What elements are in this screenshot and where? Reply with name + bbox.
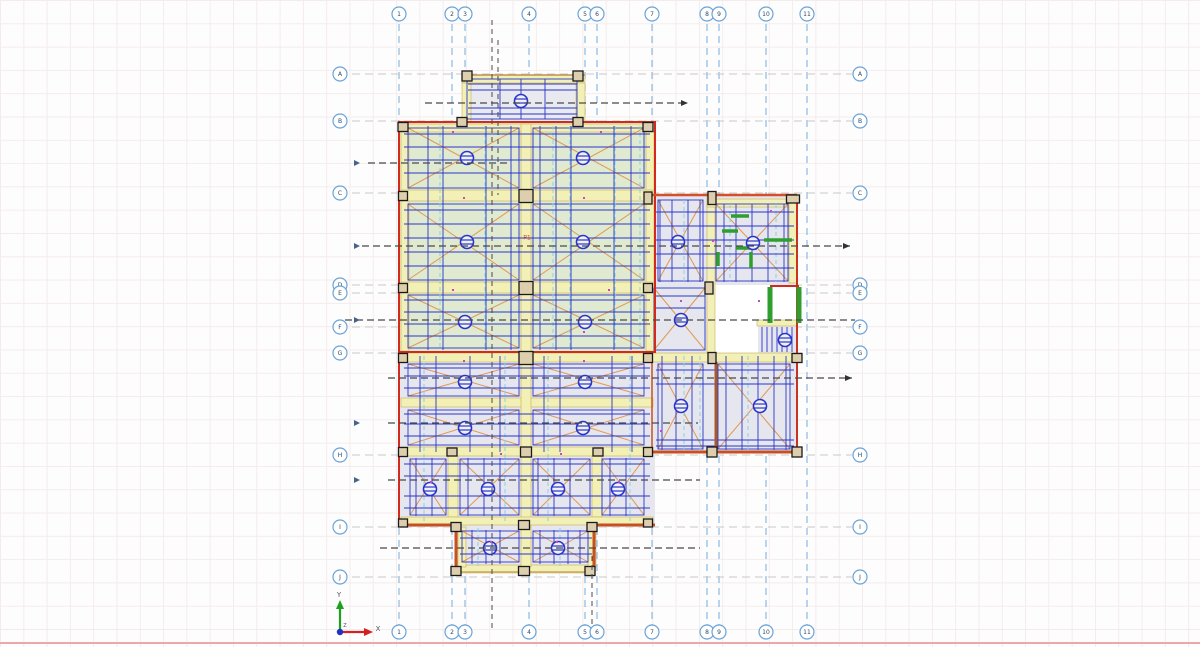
grid-bubble-label-left-F: F bbox=[338, 324, 342, 331]
grid-bubble-label-left-C: C bbox=[338, 190, 342, 197]
section-arrow bbox=[681, 100, 688, 106]
grid-bubble-label-top-7: 7 bbox=[650, 11, 654, 18]
node-speck bbox=[680, 300, 682, 302]
grid-bubble-label-top-11: 11 bbox=[803, 11, 811, 18]
ucs-y-label: Y bbox=[336, 591, 342, 599]
grid-bubble-label-left-H: H bbox=[338, 452, 343, 459]
section-flag bbox=[354, 420, 360, 426]
column[interactable] bbox=[462, 71, 472, 81]
column[interactable] bbox=[643, 123, 653, 132]
slab-marker[interactable] bbox=[754, 400, 767, 413]
grid-bubble-label-top-9: 9 bbox=[717, 11, 721, 18]
column[interactable] bbox=[644, 448, 653, 457]
node-speck bbox=[758, 300, 760, 302]
slab-marker[interactable] bbox=[779, 334, 792, 347]
grid-bubble-label-right-B: B bbox=[858, 118, 862, 125]
column[interactable] bbox=[447, 448, 457, 456]
grid-bubble-label-bottom-3: 3 bbox=[463, 629, 467, 636]
grid-bubble-label-top-3: 3 bbox=[463, 11, 467, 18]
grid-bubble-label-bottom-2: 2 bbox=[450, 629, 454, 636]
node-speck bbox=[463, 197, 465, 199]
node-speck bbox=[600, 131, 602, 133]
section-arrow bbox=[843, 243, 850, 249]
column[interactable] bbox=[399, 448, 408, 457]
node-speck bbox=[608, 289, 610, 291]
column[interactable] bbox=[587, 523, 597, 532]
slab-marker[interactable] bbox=[675, 400, 688, 413]
grid-bubble-label-right-I: I bbox=[859, 524, 861, 531]
grid-bubble-label-top-10: 10 bbox=[762, 11, 770, 18]
column[interactable] bbox=[644, 519, 653, 527]
column[interactable] bbox=[707, 447, 717, 457]
grid-bubble-label-top-8: 8 bbox=[705, 11, 709, 18]
node-speck bbox=[490, 541, 492, 543]
beam-strip[interactable] bbox=[521, 527, 531, 567]
grid-bubble-label-bottom-1: 1 bbox=[397, 629, 401, 636]
column[interactable] bbox=[399, 192, 408, 201]
grid-bubble-label-left-J: J bbox=[338, 574, 341, 581]
column[interactable] bbox=[398, 123, 408, 132]
column[interactable] bbox=[792, 354, 802, 363]
node-speck bbox=[618, 481, 620, 483]
node-speck bbox=[463, 360, 465, 362]
node-speck bbox=[556, 541, 558, 543]
column[interactable] bbox=[519, 282, 533, 295]
node-speck bbox=[430, 481, 432, 483]
grid-bubble-label-right-F: F bbox=[858, 324, 862, 331]
grid-bubble-label-right-J: J bbox=[858, 574, 861, 581]
slab-block-6[interactable] bbox=[652, 353, 797, 453]
slab-marker[interactable] bbox=[577, 152, 590, 165]
column[interactable] bbox=[451, 523, 461, 532]
column[interactable] bbox=[399, 284, 408, 293]
ucs-x-label: X bbox=[376, 625, 381, 633]
section-flag bbox=[354, 243, 360, 249]
section-arrow bbox=[845, 375, 852, 381]
grid-bubble-label-left-I: I bbox=[339, 524, 341, 531]
grid-bubble-label-bottom-8: 8 bbox=[705, 629, 709, 636]
node-speck bbox=[770, 210, 772, 212]
node-speck bbox=[583, 360, 585, 362]
beam-strip[interactable] bbox=[646, 132, 654, 351]
column[interactable] bbox=[585, 567, 595, 576]
slab-marker[interactable] bbox=[424, 483, 437, 496]
grid-bubble-label-bottom-4: 4 bbox=[527, 629, 531, 636]
column[interactable] bbox=[644, 354, 653, 363]
node-speck bbox=[583, 331, 585, 333]
section-flag bbox=[354, 477, 360, 483]
beam-strip[interactable] bbox=[789, 203, 797, 283]
section-flag bbox=[354, 317, 360, 323]
grid-bubble-label-top-4: 4 bbox=[527, 11, 531, 18]
grid-bubble-label-bottom-7: 7 bbox=[650, 629, 654, 636]
grid-bubble-label-bottom-9: 9 bbox=[717, 629, 721, 636]
grid-bubble-label-right-C: C bbox=[858, 190, 862, 197]
column[interactable] bbox=[519, 567, 530, 576]
grid-bubble-label-top-2: 2 bbox=[450, 11, 454, 18]
slab-label: P1 bbox=[523, 235, 531, 242]
beam-strip[interactable] bbox=[757, 320, 797, 326]
beam-strip[interactable] bbox=[521, 362, 531, 527]
grid-bubble-label-bottom-10: 10 bbox=[762, 629, 770, 636]
column[interactable] bbox=[399, 519, 408, 527]
column[interactable] bbox=[708, 192, 716, 205]
beam-strip[interactable] bbox=[399, 353, 797, 362]
column[interactable] bbox=[451, 567, 461, 576]
node-speck bbox=[500, 453, 502, 455]
grid-bubble-label-right-E: E bbox=[858, 290, 862, 297]
beam-strip[interactable] bbox=[707, 195, 715, 353]
column[interactable] bbox=[787, 195, 800, 203]
ucs-axis-icon bbox=[336, 600, 373, 636]
node-speck bbox=[452, 131, 454, 133]
column[interactable] bbox=[593, 448, 603, 456]
grid-bubble-label-left-E: E bbox=[338, 290, 342, 297]
slab-marker[interactable] bbox=[482, 483, 495, 496]
column[interactable] bbox=[457, 118, 467, 127]
column[interactable] bbox=[399, 354, 408, 363]
grid-bubble-label-top-6: 6 bbox=[595, 11, 599, 18]
section-flag bbox=[354, 160, 360, 166]
grid-bubble-label-left-G: G bbox=[338, 350, 343, 357]
column[interactable] bbox=[521, 447, 532, 457]
column[interactable] bbox=[519, 521, 530, 530]
plan-svg: 11223344556677889910101111AABBCCDDEEFFGG… bbox=[0, 0, 1200, 647]
grid-bubble-label-right-G: G bbox=[858, 350, 863, 357]
slab-marker[interactable] bbox=[552, 483, 565, 496]
grid-bubble-label-left-B: B bbox=[338, 118, 342, 125]
node-speck bbox=[583, 197, 585, 199]
column[interactable] bbox=[519, 190, 533, 203]
grid-bubble-label-right-H: H bbox=[858, 452, 863, 459]
grid-bubble-label-bottom-5: 5 bbox=[583, 629, 587, 636]
grid-bubble-label-top-1: 1 bbox=[397, 11, 401, 18]
column[interactable] bbox=[573, 118, 583, 127]
column[interactable] bbox=[792, 447, 802, 457]
node-speck bbox=[452, 289, 454, 291]
column[interactable] bbox=[644, 284, 653, 293]
ucs-z-label: Z bbox=[343, 623, 347, 629]
node-speck bbox=[560, 453, 562, 455]
grid-bubble-label-bottom-6: 6 bbox=[595, 629, 599, 636]
slab-marker[interactable] bbox=[612, 483, 625, 496]
drawing-canvas[interactable]: 11223344556677889910101111AABBCCDDEEFFGG… bbox=[0, 0, 1200, 647]
column[interactable] bbox=[705, 282, 713, 294]
grid-bubble-label-bottom-11: 11 bbox=[803, 629, 811, 636]
grid-bubble-label-top-5: 5 bbox=[583, 11, 587, 18]
slab-marker[interactable] bbox=[747, 237, 760, 250]
slab-marker[interactable] bbox=[515, 95, 528, 108]
slab-marker[interactable] bbox=[459, 316, 472, 329]
node-speck bbox=[660, 430, 662, 432]
node-speck bbox=[712, 240, 714, 242]
column[interactable] bbox=[644, 192, 652, 204]
column[interactable] bbox=[708, 353, 716, 364]
column[interactable] bbox=[573, 71, 583, 81]
slab-marker[interactable] bbox=[579, 316, 592, 329]
column[interactable] bbox=[519, 352, 533, 365]
